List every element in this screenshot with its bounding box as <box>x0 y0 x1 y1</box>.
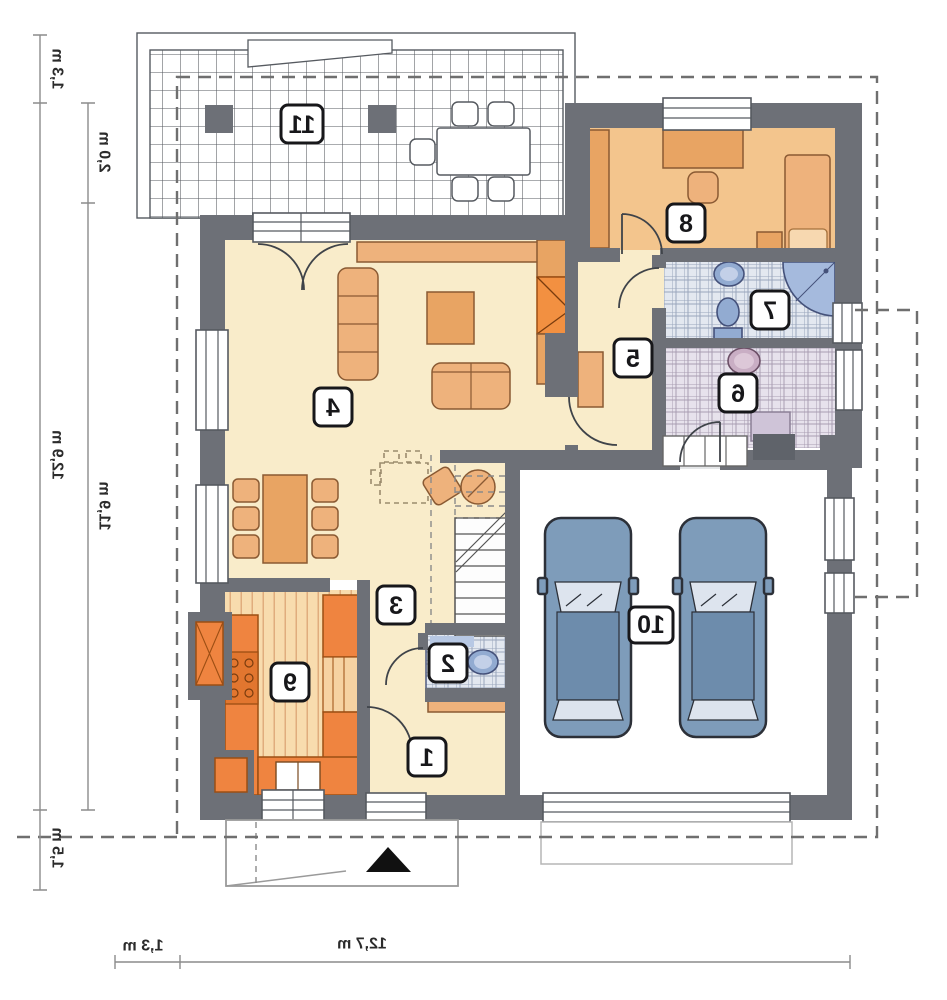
floor-plan-page: 1,3 m 12,9 m 1,5 m 2,0 m 11,9 m 1,3 m 12… <box>0 0 947 1000</box>
roof-bay-dashed <box>855 310 917 597</box>
car <box>673 518 773 737</box>
chair <box>312 479 338 502</box>
room-badge-9: 9 <box>271 663 309 701</box>
window-bedroom <box>663 98 751 130</box>
counter-right-top <box>323 595 359 657</box>
room-badge-6: 6 <box>719 374 757 412</box>
svg-text:1: 1 <box>420 744 434 772</box>
svg-text:3: 3 <box>389 592 403 620</box>
dim-label: 12,7 m <box>337 936 387 953</box>
room-badge-1: 1 <box>408 738 446 776</box>
window-bath6 <box>836 350 862 410</box>
dim-label: 11,9 m <box>96 482 113 531</box>
desk-chair <box>688 172 718 203</box>
svg-text:8: 8 <box>679 210 693 238</box>
garage-door <box>543 793 790 822</box>
terrace <box>137 33 575 218</box>
chimney <box>202 750 254 820</box>
dim-label: 1,5 m <box>49 828 66 869</box>
fireplace-block <box>753 434 795 460</box>
shower-drain <box>824 269 829 274</box>
porch-outline <box>226 820 458 886</box>
dining-table <box>263 475 307 563</box>
chair <box>312 535 338 558</box>
room-badge-3: 3 <box>377 586 415 624</box>
room-badge-4: 4 <box>314 388 352 426</box>
coffee-table <box>427 292 474 344</box>
dining-set <box>233 475 338 563</box>
window-west <box>196 485 228 583</box>
dimension-bottom: 1,3 m 12,7 m <box>115 936 850 970</box>
room-badge-5: 5 <box>614 339 652 377</box>
svg-text:7: 7 <box>763 297 777 325</box>
desk <box>663 130 743 168</box>
svg-text:2: 2 <box>441 650 455 678</box>
dim-label: 1,3 m <box>49 49 66 90</box>
room-badge-2: 2 <box>429 644 467 682</box>
svg-text:4: 4 <box>326 394 340 422</box>
floor-plan-svg: 1,3 m 12,9 m 1,5 m 2,0 m 11,9 m 1,3 m 12… <box>0 0 947 1000</box>
car <box>538 518 638 737</box>
dimension-left-outer: 1,3 m 12,9 m 1,5 m <box>33 35 66 890</box>
dimension-left-inner: 2,0 m 11,9 m <box>81 103 113 810</box>
window-garage <box>825 573 854 613</box>
chair <box>312 507 338 530</box>
dishwasher <box>323 657 359 712</box>
window-west <box>196 330 228 430</box>
chair <box>233 535 259 558</box>
corridor-cabinet <box>578 352 603 407</box>
room-badge-11: 11 <box>281 105 323 143</box>
living-room-floor <box>225 240 577 455</box>
dim-label: 2,0 m <box>96 132 113 173</box>
dim-label: 12,9 m <box>49 430 66 480</box>
room-badge-10: 10 <box>629 607 673 643</box>
toilet <box>717 298 739 326</box>
dim-label: 1,3 m <box>123 938 164 955</box>
cabinet <box>537 240 567 277</box>
toilet-tank <box>714 328 742 339</box>
terrace-post <box>368 105 396 133</box>
room-badge-8: 8 <box>667 204 705 242</box>
svg-text:9: 9 <box>283 669 297 697</box>
terrace-post <box>205 105 233 133</box>
room-badge-7: 7 <box>751 291 789 329</box>
chair <box>233 507 259 530</box>
svg-text:11: 11 <box>289 111 316 139</box>
shelf <box>357 242 538 262</box>
chair <box>233 479 259 502</box>
svg-text:10: 10 <box>637 611 665 639</box>
driveway-apron <box>541 822 792 864</box>
chimney <box>188 612 232 700</box>
svg-text:6: 6 <box>731 380 745 408</box>
window-garage <box>825 498 854 560</box>
entry-porch <box>226 820 458 886</box>
stairs-lower <box>455 518 507 636</box>
svg-text:5: 5 <box>626 345 640 373</box>
entry-door-panel <box>366 793 426 822</box>
